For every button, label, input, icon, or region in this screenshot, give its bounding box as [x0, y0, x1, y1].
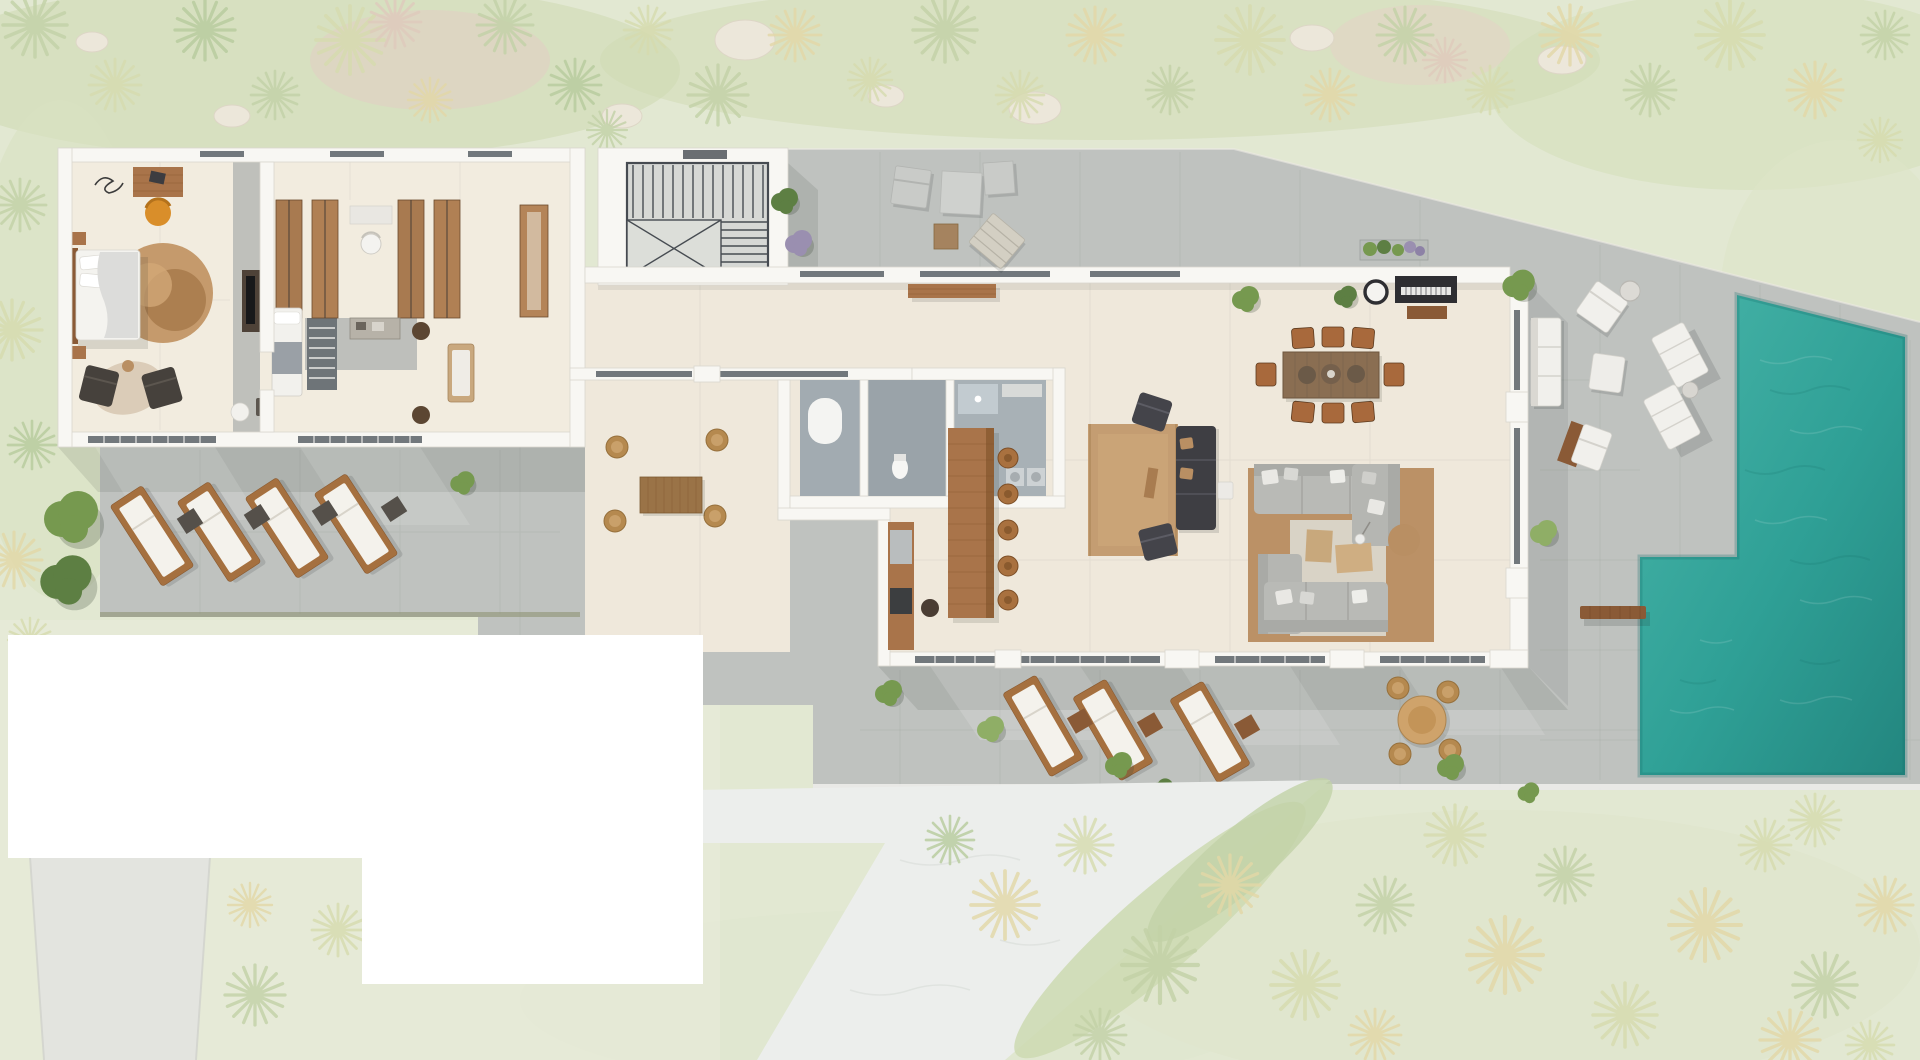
deck-notch: [790, 520, 890, 652]
side-stool: [122, 360, 134, 372]
bathtub: [808, 398, 842, 444]
daybed: [272, 308, 302, 396]
beach-ball: [1620, 281, 1640, 301]
closet-bench: [448, 344, 474, 402]
living-room: [1248, 464, 1434, 642]
masked-white-area-1: [8, 635, 703, 858]
pouf: [1588, 353, 1628, 396]
floor-pot: [921, 599, 939, 617]
wall-pillar: [1506, 392, 1528, 422]
outdoor-table: [940, 171, 985, 218]
cube-stool: [983, 161, 1018, 198]
outdoor-dining-table: [640, 477, 705, 516]
bed: [70, 232, 148, 359]
basket: [412, 406, 430, 424]
wicker-chair: [704, 505, 726, 527]
wall-pillar: [1165, 650, 1199, 668]
bathroom-block: [790, 368, 1065, 508]
nightstand: [70, 346, 86, 359]
side-table: [1218, 482, 1233, 499]
dining-table: [1283, 352, 1382, 402]
wicker-chair: [606, 436, 628, 458]
plan-canvas: [0, 0, 1920, 1060]
basket: [412, 322, 430, 340]
appliance-front: [890, 530, 912, 564]
wall-pillar: [1330, 650, 1364, 668]
outdoor-chair: [890, 166, 934, 212]
kitchen-island: [948, 428, 999, 623]
striped-runner: [307, 318, 337, 390]
piano-bench: [1407, 306, 1447, 319]
floor-plan-render: [0, 0, 1920, 1060]
wall-pillar: [995, 650, 1021, 668]
wall-mirror: [1365, 281, 1387, 303]
ottoman: [1388, 524, 1420, 556]
hedge-line: [100, 612, 580, 617]
staircase: [598, 148, 788, 285]
outdoor-sofa: [1531, 318, 1564, 409]
pool-bench: [1580, 606, 1650, 626]
side-table: [1682, 382, 1698, 398]
closet-window: [298, 436, 422, 443]
wall-pillar: [1506, 568, 1528, 598]
floor-lamp: [1355, 534, 1365, 544]
wicker-chair: [604, 510, 626, 532]
wood-cube: [934, 224, 958, 249]
masked-white-area-2: [362, 858, 703, 984]
coffee-table: [1305, 529, 1333, 562]
access-road: [30, 857, 210, 1060]
corridor-bench: [908, 284, 1000, 302]
sink-counter: [1002, 384, 1042, 397]
dresser: [350, 318, 400, 339]
pedestal-table: [231, 403, 249, 421]
tv-console: [242, 270, 260, 332]
wall-pillar: [1490, 650, 1528, 668]
oven: [890, 588, 912, 614]
roof-vent: [683, 150, 727, 159]
wall-planter: [1360, 240, 1428, 260]
desk: [133, 167, 183, 197]
wicker-chair: [706, 429, 728, 451]
coffee-table: [1335, 543, 1373, 573]
dark-sofa: [1176, 426, 1219, 533]
nightstand: [70, 232, 86, 245]
